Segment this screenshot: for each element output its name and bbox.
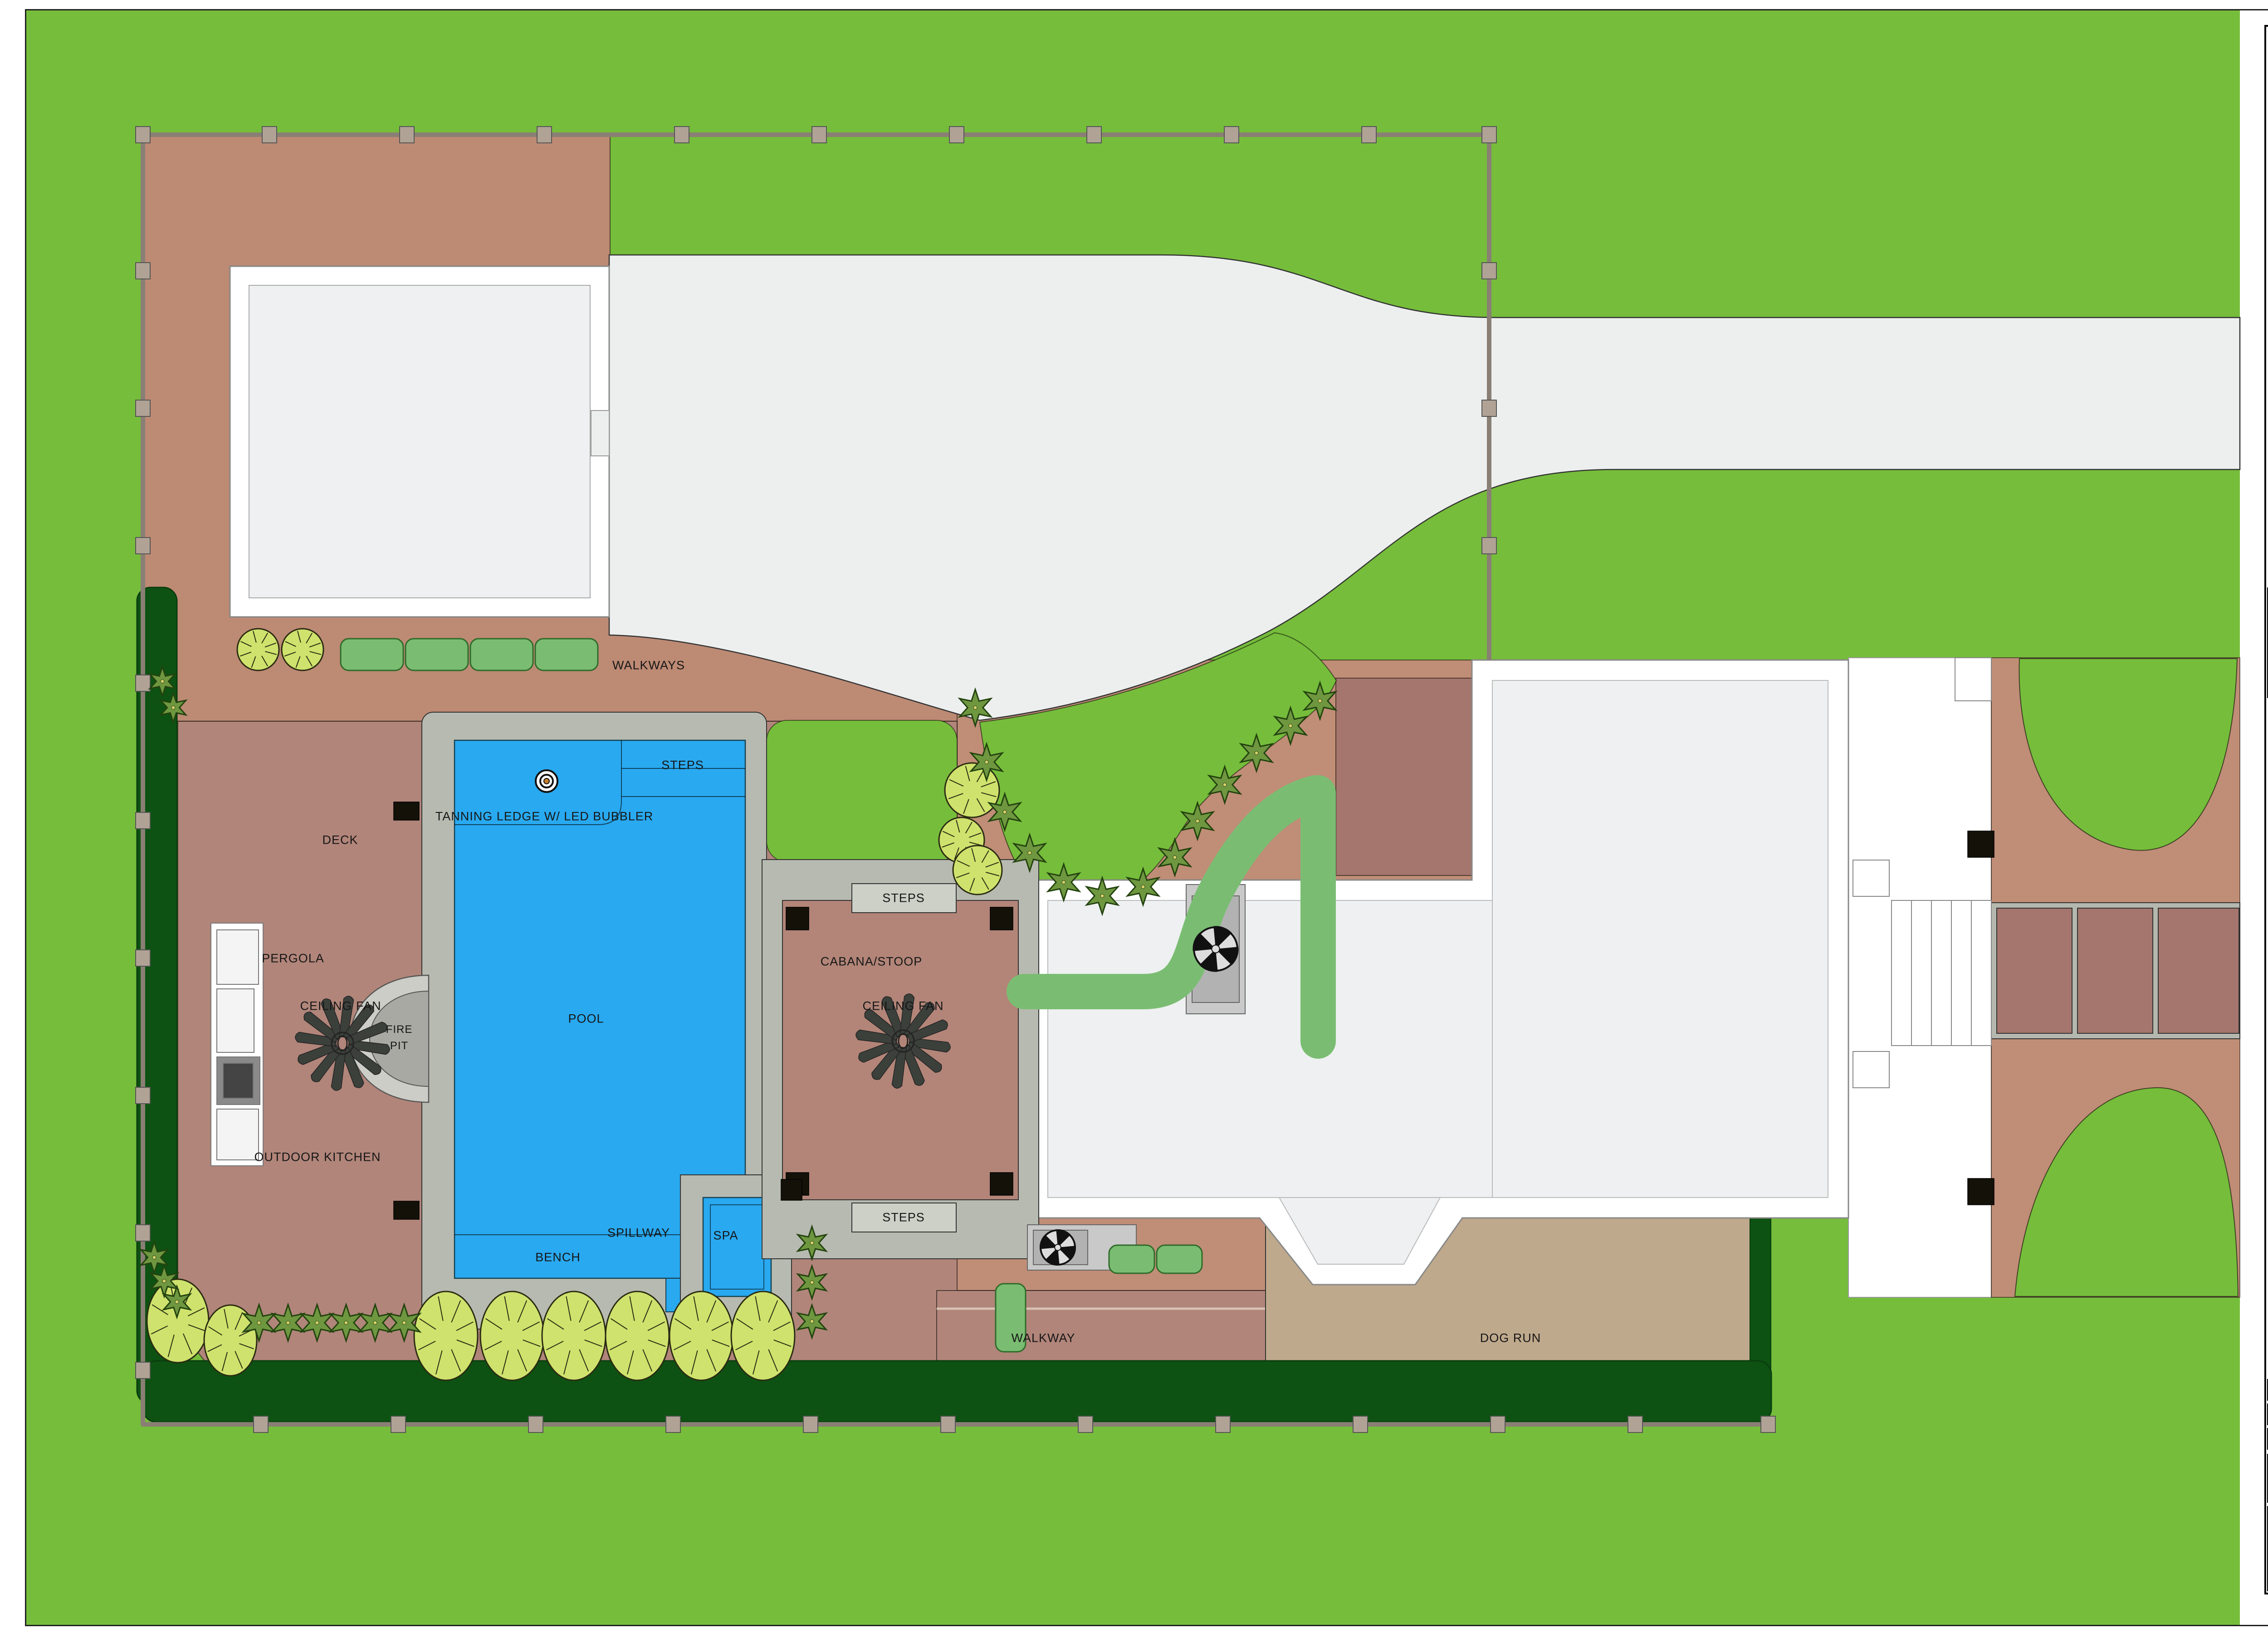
cabana-steps-north <box>852 884 956 913</box>
cabana-steps-south <box>852 1203 956 1232</box>
entry-steps <box>1892 900 1991 1046</box>
hedge-south <box>143 1361 1771 1422</box>
garage-door <box>591 411 609 456</box>
led-bubbler-icon <box>536 770 557 792</box>
outdoor-kitchen <box>211 923 263 1166</box>
spa-water <box>703 1198 771 1296</box>
site-plan-sheet: WALKWAYS STEPS TANNING LEDGE W/ LED BUBB… <box>0 0 2268 1633</box>
front-entry-area <box>1848 658 2240 1297</box>
title-block <box>2264 25 2268 1594</box>
house-floor-main <box>1492 680 1828 1198</box>
site-plan-drawing <box>0 0 2268 1633</box>
garage <box>230 266 609 617</box>
house-side-patio <box>1336 678 1472 875</box>
house-floor-wing <box>1048 900 1492 1198</box>
lawn-pocket <box>767 720 957 862</box>
